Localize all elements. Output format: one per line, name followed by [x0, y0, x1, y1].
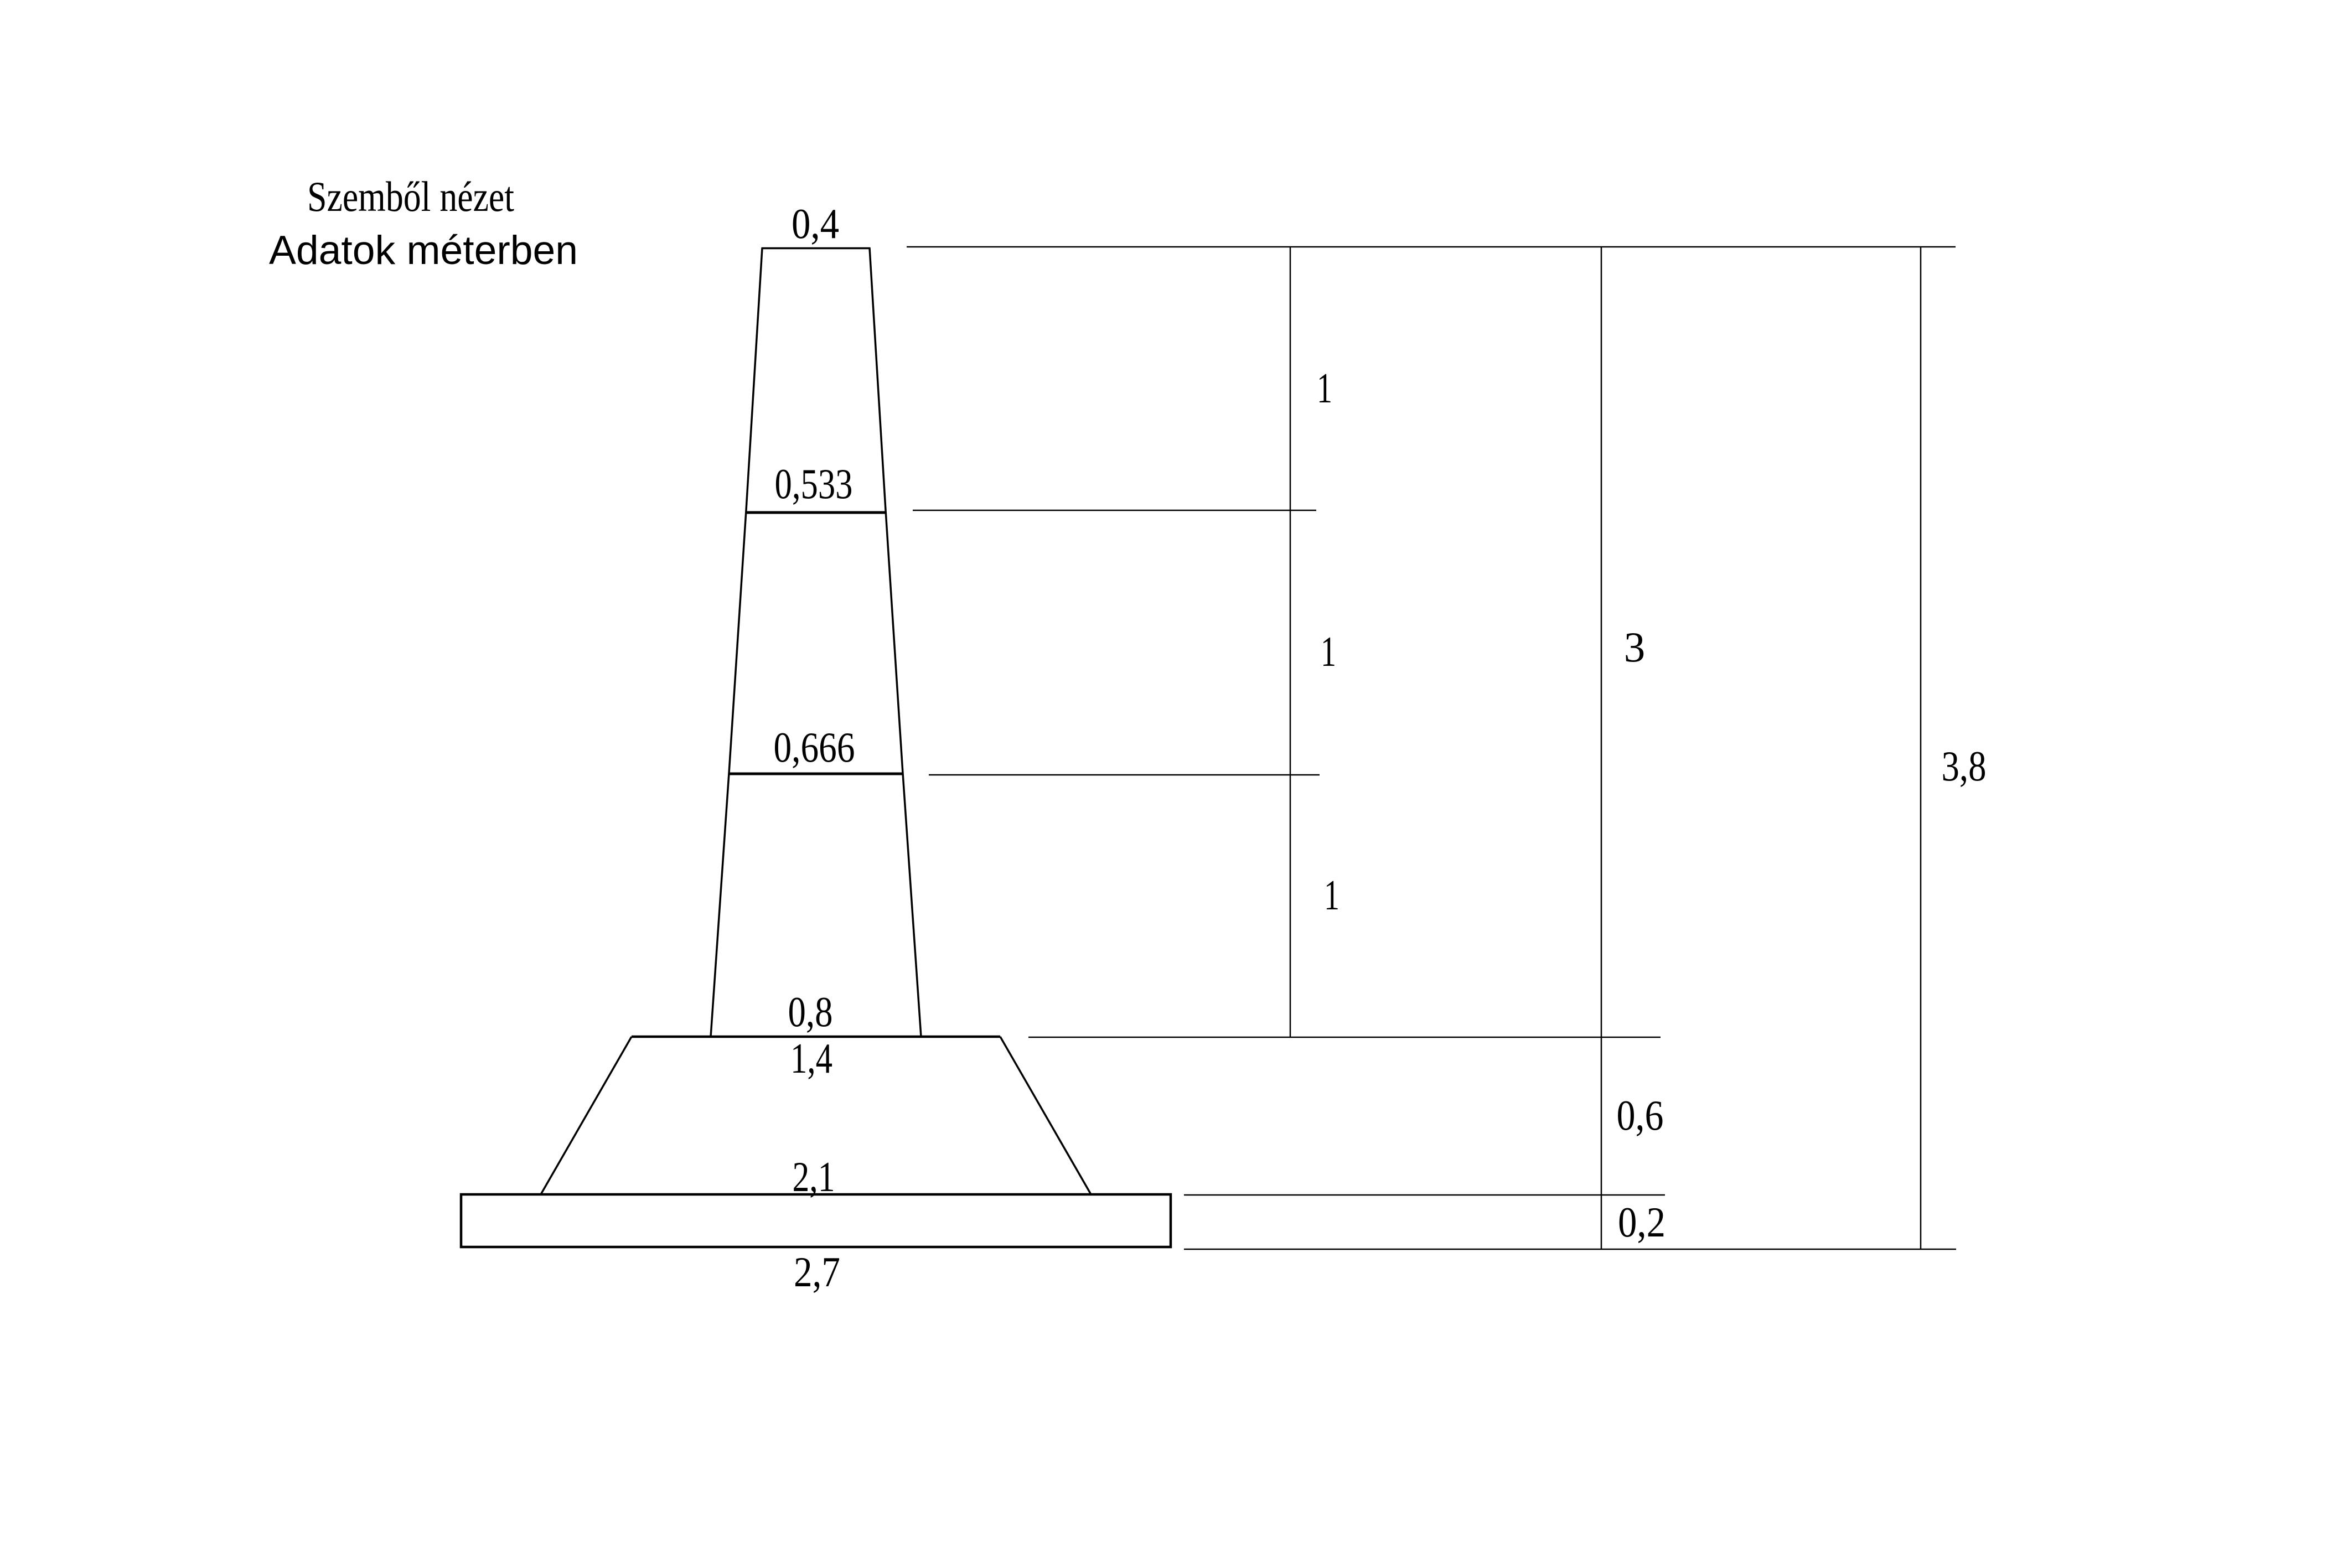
svg-text:0,8: 0,8: [788, 988, 833, 1036]
svg-text:1: 1: [1321, 628, 1336, 675]
svg-text:Adatok méterben: Adatok méterben: [269, 228, 578, 273]
svg-text:1: 1: [1324, 871, 1340, 919]
svg-text:2,1: 2,1: [793, 1153, 835, 1200]
svg-text:0,666: 0,666: [774, 723, 855, 771]
svg-text:3,8: 3,8: [1942, 742, 1987, 790]
svg-text:1,4: 1,4: [790, 1034, 832, 1082]
svg-text:3: 3: [1624, 623, 1646, 671]
svg-text:0,6: 0,6: [1617, 1091, 1664, 1139]
svg-text:1: 1: [1317, 364, 1332, 412]
svg-text:2,7: 2,7: [794, 1248, 840, 1296]
svg-text:0,4: 0,4: [792, 200, 839, 247]
svg-text:Szemből nézet: Szemből nézet: [307, 173, 514, 220]
svg-text:0,533: 0,533: [775, 460, 853, 508]
svg-text:0,2: 0,2: [1618, 1198, 1666, 1246]
